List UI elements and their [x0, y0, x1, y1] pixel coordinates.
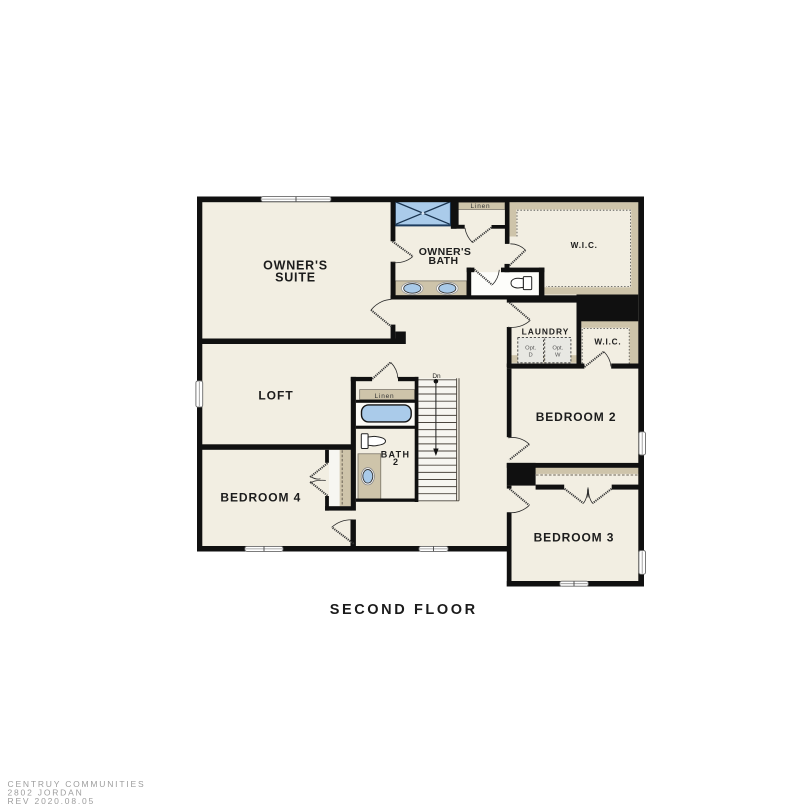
svg-text:REV 2020.08.05: REV 2020.08.05 — [8, 796, 96, 806]
svg-text:Dn: Dn — [432, 373, 441, 380]
svg-text:LAUNDRY: LAUNDRY — [522, 327, 570, 337]
svg-text:BATH: BATH — [429, 255, 459, 267]
svg-text:Linen: Linen — [471, 203, 491, 210]
svg-text:LOFT: LOFT — [258, 389, 293, 403]
svg-text:Linen: Linen — [375, 393, 395, 400]
svg-text:W.I.C.: W.I.C. — [594, 338, 621, 347]
svg-text:W.I.C.: W.I.C. — [571, 241, 598, 250]
svg-text:BEDROOM 4: BEDROOM 4 — [220, 491, 301, 505]
svg-text:BEDROOM 2: BEDROOM 2 — [536, 410, 617, 424]
svg-text:BEDROOM 3: BEDROOM 3 — [534, 530, 615, 544]
svg-text:SECOND FLOOR: SECOND FLOOR — [330, 602, 478, 618]
svg-text:SUITE: SUITE — [275, 271, 316, 285]
svg-text:2: 2 — [393, 457, 398, 467]
svg-text:Opt.: Opt. — [525, 346, 536, 352]
svg-text:W: W — [555, 353, 561, 359]
svg-text:D: D — [529, 353, 533, 359]
svg-text:Opt.: Opt. — [552, 346, 563, 352]
